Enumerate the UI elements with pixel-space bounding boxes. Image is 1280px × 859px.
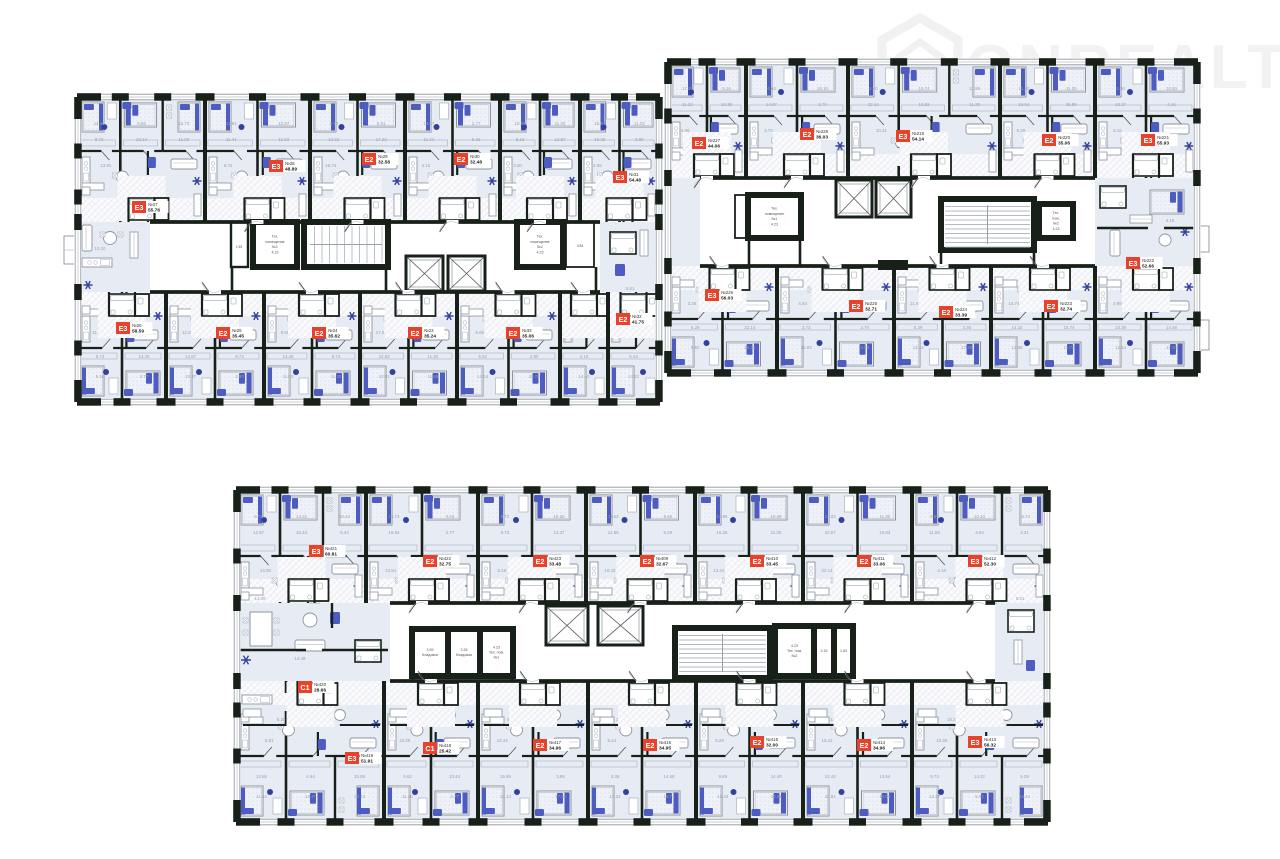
svg-text:4.16: 4.16 <box>937 568 946 573</box>
svg-text:13.44: 13.44 <box>713 568 725 573</box>
svg-text:9.73: 9.73 <box>930 774 939 779</box>
svg-text:2.77: 2.77 <box>140 374 149 379</box>
svg-text:56.32: 56.32 <box>984 743 996 749</box>
svg-text:22.14: 22.14 <box>822 568 834 573</box>
svg-text:Тех.: Тех. <box>272 235 279 239</box>
svg-text:5.51: 5.51 <box>377 121 386 126</box>
svg-text:14.09: 14.09 <box>255 596 267 601</box>
svg-text:13.44: 13.44 <box>497 738 509 743</box>
svg-text:33.39: 33.39 <box>955 313 967 319</box>
svg-text:5.52: 5.52 <box>479 354 488 359</box>
svg-text:№414: №414 <box>873 740 886 745</box>
svg-text:№26: №26 <box>132 323 142 328</box>
svg-text:4.23: 4.23 <box>493 645 500 649</box>
svg-text:35.24: 35.24 <box>424 334 436 340</box>
svg-text:E3: E3 <box>312 547 321 556</box>
svg-text:9.69: 9.69 <box>664 514 673 519</box>
svg-text:E3: E3 <box>971 738 980 747</box>
svg-text:№32: №32 <box>632 314 642 319</box>
svg-text:9.69: 9.69 <box>475 330 484 335</box>
svg-text:11.63: 11.63 <box>283 374 294 379</box>
svg-text:№419: №419 <box>361 753 374 758</box>
svg-text:№225: №225 <box>865 301 878 306</box>
svg-text:E2: E2 <box>803 130 812 139</box>
svg-text:13.91: 13.91 <box>379 374 391 379</box>
svg-text:Тех.: Тех. <box>537 235 544 239</box>
svg-text:E2: E2 <box>1045 136 1054 145</box>
svg-text:12.87: 12.87 <box>253 530 265 535</box>
svg-text:15.74: 15.74 <box>1019 514 1031 519</box>
svg-text:5.29: 5.29 <box>277 717 286 722</box>
svg-text:2.77: 2.77 <box>450 794 459 799</box>
svg-text:E3: E3 <box>272 162 281 171</box>
svg-text:17.20: 17.20 <box>961 345 973 350</box>
svg-text:№23: №23 <box>424 328 434 333</box>
svg-text:10.83: 10.83 <box>594 121 606 126</box>
svg-text:№31: №31 <box>629 172 639 177</box>
svg-text:4.64: 4.64 <box>767 86 776 91</box>
svg-text:22.14: 22.14 <box>500 794 512 799</box>
svg-text:10.41: 10.41 <box>876 128 888 133</box>
svg-text:14.22: 14.22 <box>328 137 340 142</box>
svg-text:9.69: 9.69 <box>930 514 939 519</box>
svg-text:32.48: 32.48 <box>470 160 482 166</box>
svg-text:E2: E2 <box>536 557 545 566</box>
svg-text:E2: E2 <box>753 738 762 747</box>
svg-text:E3: E3 <box>971 557 980 566</box>
svg-text:Тех.: Тех. <box>1053 211 1060 215</box>
svg-text:3.40: 3.40 <box>513 163 522 168</box>
svg-text:12.86: 12.86 <box>717 514 729 519</box>
svg-text:22.14: 22.14 <box>136 137 148 142</box>
svg-text:11.20: 11.20 <box>427 354 438 359</box>
svg-text:5.16: 5.16 <box>722 86 731 91</box>
svg-text:11.20: 11.20 <box>969 102 980 107</box>
svg-text:11.59: 11.59 <box>929 530 940 535</box>
svg-text:14.40: 14.40 <box>94 121 106 126</box>
svg-text:5.52: 5.52 <box>975 794 984 799</box>
svg-text:E3: E3 <box>1144 136 1153 145</box>
svg-text:14.40: 14.40 <box>771 774 783 779</box>
svg-text:35.45: 35.45 <box>232 334 244 340</box>
svg-text:4.23: 4.23 <box>791 644 798 648</box>
svg-text:E2: E2 <box>695 139 704 148</box>
svg-text:E2: E2 <box>753 557 762 566</box>
svg-text:32.74: 32.74 <box>1060 307 1072 313</box>
svg-text:10.39: 10.39 <box>721 102 733 107</box>
svg-text:3.70: 3.70 <box>818 102 827 107</box>
svg-text:13.37: 13.37 <box>554 530 566 535</box>
svg-text:3.70: 3.70 <box>861 325 870 330</box>
svg-text:3.98: 3.98 <box>861 345 870 350</box>
svg-text:2.77: 2.77 <box>446 530 455 535</box>
svg-text:17.20: 17.20 <box>682 86 694 91</box>
svg-text:11.44: 11.44 <box>226 137 237 142</box>
svg-text:15.74: 15.74 <box>389 514 401 519</box>
svg-text:C1: C1 <box>300 683 309 692</box>
svg-text:17.20: 17.20 <box>1166 345 1178 350</box>
svg-text:14.48: 14.48 <box>1166 325 1178 330</box>
svg-text:10.43: 10.43 <box>296 530 308 535</box>
svg-text:13.44: 13.44 <box>1019 794 1031 799</box>
svg-text:10.39: 10.39 <box>399 738 411 743</box>
svg-text:41.75: 41.75 <box>632 320 644 326</box>
svg-text:№412: №412 <box>984 556 997 561</box>
svg-text:12.83: 12.83 <box>801 345 813 350</box>
svg-text:35.62: 35.62 <box>328 334 340 340</box>
svg-text:помещение: помещение <box>530 240 549 244</box>
svg-text:36.03: 36.03 <box>816 135 828 141</box>
svg-text:№226: №226 <box>721 290 734 295</box>
svg-text:№30: №30 <box>470 154 480 159</box>
svg-text:52.30: 52.30 <box>984 562 996 568</box>
svg-text:10.10: 10.10 <box>817 86 829 91</box>
svg-text:№25: №25 <box>232 328 242 333</box>
svg-text:5.16: 5.16 <box>498 568 507 573</box>
svg-text:5.51: 5.51 <box>265 738 274 743</box>
svg-text:15.70: 15.70 <box>529 374 541 379</box>
svg-text:3.15: 3.15 <box>821 649 828 653</box>
svg-text:Тех. пом.: Тех. пом. <box>489 651 504 655</box>
svg-text:10.83: 10.83 <box>879 530 891 535</box>
svg-text:12.44: 12.44 <box>913 345 925 350</box>
svg-text:3.73: 3.73 <box>802 325 811 330</box>
svg-text:E2: E2 <box>365 155 374 164</box>
svg-text:51.91: 51.91 <box>361 759 373 765</box>
svg-text:9.73: 9.73 <box>235 354 244 359</box>
svg-text:3.90: 3.90 <box>635 137 644 142</box>
svg-text:55.76: 55.76 <box>148 208 160 214</box>
svg-text:5.44: 5.44 <box>340 530 349 535</box>
svg-text:5.16: 5.16 <box>516 137 525 142</box>
svg-text:15.74: 15.74 <box>325 163 337 168</box>
svg-text:13.37: 13.37 <box>1115 102 1127 107</box>
svg-text:14.67: 14.67 <box>766 102 778 107</box>
svg-text:10.39: 10.39 <box>1115 325 1127 330</box>
svg-text:11.63: 11.63 <box>278 137 289 142</box>
svg-text:9.69: 9.69 <box>719 774 728 779</box>
svg-text:№221: №221 <box>1157 135 1170 140</box>
svg-text:№223: №223 <box>1060 301 1073 306</box>
svg-text:15.74: 15.74 <box>919 86 931 91</box>
svg-text:32.75: 32.75 <box>439 562 451 568</box>
svg-text:35.06: 35.06 <box>522 334 534 340</box>
svg-text:E3: E3 <box>899 132 908 141</box>
svg-text:E3: E3 <box>119 324 128 333</box>
svg-text:9.73: 9.73 <box>501 530 510 535</box>
svg-text:E2: E2 <box>643 557 652 566</box>
svg-text:помещение: помещение <box>265 240 284 244</box>
svg-text:E2: E2 <box>619 315 628 324</box>
svg-text:11.20: 11.20 <box>1018 86 1029 91</box>
svg-text:8.72: 8.72 <box>95 137 104 142</box>
svg-text:12.44: 12.44 <box>717 794 729 799</box>
svg-text:1.83: 1.83 <box>840 649 847 653</box>
svg-text:4.23: 4.23 <box>537 250 544 254</box>
svg-text:4.23: 4.23 <box>272 250 279 254</box>
svg-text:52.66: 52.66 <box>1142 264 1154 270</box>
svg-text:4.64: 4.64 <box>306 774 315 779</box>
svg-text:12.86: 12.86 <box>256 774 268 779</box>
svg-text:13.44: 13.44 <box>449 774 461 779</box>
svg-text:8.72: 8.72 <box>224 163 233 168</box>
svg-text:8.72: 8.72 <box>501 514 510 519</box>
svg-text:12.86: 12.86 <box>1012 345 1024 350</box>
svg-text:4.64: 4.64 <box>446 514 455 519</box>
svg-text:5.29: 5.29 <box>914 325 923 330</box>
svg-text:15.89: 15.89 <box>1066 102 1078 107</box>
svg-text:17.50: 17.50 <box>555 794 567 799</box>
svg-text:5.16: 5.16 <box>96 374 105 379</box>
svg-text:5.29: 5.29 <box>664 530 673 535</box>
svg-text:11.63: 11.63 <box>608 514 619 519</box>
svg-text:3.26: 3.26 <box>461 648 468 652</box>
svg-text:12.14: 12.14 <box>477 374 489 379</box>
svg-text:14.22: 14.22 <box>1012 325 1024 330</box>
svg-text:12.87: 12.87 <box>555 137 567 142</box>
svg-text:№409: №409 <box>656 556 669 561</box>
svg-text:11.03: 11.03 <box>178 137 189 142</box>
svg-text:55.93: 55.93 <box>1157 141 1169 147</box>
svg-text:11.59: 11.59 <box>427 374 438 379</box>
svg-text:E2: E2 <box>536 741 545 750</box>
svg-text:1.55: 1.55 <box>236 245 242 249</box>
svg-text:12.87: 12.87 <box>278 121 290 126</box>
svg-text:Тех.: Тех. <box>771 207 778 211</box>
svg-text:E2: E2 <box>852 302 861 311</box>
svg-text:10.41: 10.41 <box>771 794 783 799</box>
svg-text:№222: №222 <box>1142 258 1155 263</box>
svg-text:3.90: 3.90 <box>235 374 244 379</box>
svg-text:№27: №27 <box>148 202 158 207</box>
svg-text:22.14: 22.14 <box>868 102 880 107</box>
svg-text:32.67: 32.67 <box>656 562 668 568</box>
svg-text:35.06: 35.06 <box>1058 141 1070 147</box>
svg-text:13.91: 13.91 <box>100 163 112 168</box>
svg-text:№28: №28 <box>285 161 295 166</box>
svg-text:4.23: 4.23 <box>1053 227 1060 231</box>
svg-text:5.29: 5.29 <box>691 325 700 330</box>
svg-text:15.74: 15.74 <box>1064 325 1076 330</box>
svg-text:E2: E2 <box>411 329 420 338</box>
svg-text:10.43: 10.43 <box>354 794 366 799</box>
svg-text:E2: E2 <box>457 155 466 164</box>
svg-text:4.31: 4.31 <box>1020 530 1029 535</box>
svg-text:12.86: 12.86 <box>608 530 620 535</box>
svg-text:13.37: 13.37 <box>305 794 317 799</box>
svg-text:10.39: 10.39 <box>515 121 527 126</box>
svg-text:3.36: 3.36 <box>963 325 972 330</box>
svg-text:5.81: 5.81 <box>1016 596 1025 601</box>
svg-text:16.94: 16.94 <box>389 530 401 535</box>
svg-text:11.30: 11.30 <box>879 514 890 519</box>
svg-text:14.40: 14.40 <box>139 354 151 359</box>
svg-text:16.94: 16.94 <box>1018 102 1030 107</box>
svg-text:15.70: 15.70 <box>1064 345 1076 350</box>
svg-text:8.72: 8.72 <box>96 354 105 359</box>
svg-text:34.95: 34.95 <box>659 746 671 752</box>
svg-text:14.22: 14.22 <box>296 514 308 519</box>
svg-text:4.16: 4.16 <box>580 354 589 359</box>
svg-text:54.48: 54.48 <box>629 178 641 184</box>
svg-text:4.64: 4.64 <box>975 530 984 535</box>
svg-text:3.40: 3.40 <box>869 86 878 91</box>
svg-text:8.72: 8.72 <box>254 514 263 519</box>
svg-text:№1: №1 <box>272 245 278 249</box>
svg-text:№220: №220 <box>1058 135 1071 140</box>
svg-text:№228: №228 <box>816 129 829 134</box>
svg-text:14.48: 14.48 <box>664 774 676 779</box>
svg-text:13.37: 13.37 <box>185 374 197 379</box>
svg-text:32.58: 32.58 <box>378 160 390 166</box>
svg-text:56.03: 56.03 <box>721 296 733 302</box>
svg-text:№413: №413 <box>984 737 997 742</box>
svg-text:14.09: 14.09 <box>260 568 272 573</box>
svg-text:11.30: 11.30 <box>1066 86 1077 91</box>
svg-text:16.26: 16.26 <box>744 345 756 350</box>
svg-text:№415: №415 <box>766 737 779 742</box>
svg-text:10.10: 10.10 <box>974 514 986 519</box>
svg-text:3.90: 3.90 <box>530 354 539 359</box>
svg-text:25.42: 25.42 <box>439 749 451 755</box>
svg-text:54.14: 54.14 <box>912 137 924 143</box>
svg-text:№224: №224 <box>955 307 968 312</box>
svg-text:11.30: 11.30 <box>331 374 342 379</box>
svg-text:Тех. пом.: Тех. пом. <box>787 649 802 653</box>
svg-text:№219: №219 <box>912 131 925 136</box>
svg-text:4.16: 4.16 <box>1167 102 1176 107</box>
svg-text:5.44: 5.44 <box>608 738 617 743</box>
svg-text:14.67: 14.67 <box>423 121 435 126</box>
svg-text:№411: №411 <box>873 556 885 561</box>
svg-text:№24: №24 <box>328 328 338 333</box>
svg-text:3.59: 3.59 <box>427 648 434 652</box>
svg-text:14.09: 14.09 <box>879 794 891 799</box>
svg-text:14.22: 14.22 <box>610 794 622 799</box>
svg-text:5.44: 5.44 <box>629 354 638 359</box>
svg-text:E2: E2 <box>315 329 324 338</box>
svg-text:9.73: 9.73 <box>332 354 341 359</box>
svg-text:10.83: 10.83 <box>919 102 931 107</box>
svg-text:15.70: 15.70 <box>178 121 190 126</box>
svg-text:E2: E2 <box>860 557 869 566</box>
svg-text:E3: E3 <box>135 203 144 212</box>
svg-text:10.43: 10.43 <box>339 514 351 519</box>
svg-text:10.10: 10.10 <box>95 246 107 251</box>
svg-text:E2: E2 <box>509 329 518 338</box>
svg-text:5.16: 5.16 <box>472 137 481 142</box>
svg-text:16.26: 16.26 <box>554 514 566 519</box>
svg-text:№417: №417 <box>549 740 562 745</box>
svg-text:32.00: 32.00 <box>766 743 778 749</box>
svg-text:E3: E3 <box>616 173 625 182</box>
svg-text:9.62: 9.62 <box>403 774 412 779</box>
svg-text:28.66: 28.66 <box>314 688 326 694</box>
svg-text:Кладовая: Кладовая <box>456 653 472 657</box>
svg-text:11.30: 11.30 <box>555 121 566 126</box>
svg-text:пом.: пом. <box>1052 216 1059 220</box>
svg-text:E2: E2 <box>860 741 869 750</box>
svg-text:5.52: 5.52 <box>691 345 700 350</box>
svg-text:13.37: 13.37 <box>929 794 941 799</box>
svg-text:14.40: 14.40 <box>579 374 591 379</box>
svg-text:14.22: 14.22 <box>628 374 640 379</box>
svg-text:3.98: 3.98 <box>556 774 565 779</box>
svg-text:Кладовки: Кладовки <box>422 653 438 657</box>
svg-text:3.36: 3.36 <box>1116 86 1125 91</box>
svg-text:4.64: 4.64 <box>798 301 807 306</box>
svg-text:E3: E3 <box>348 754 357 763</box>
svg-text:№33: №33 <box>522 328 532 333</box>
svg-text:11.30: 11.30 <box>771 530 782 535</box>
svg-text:15.74: 15.74 <box>664 794 676 799</box>
svg-text:34.96: 34.96 <box>549 746 561 752</box>
svg-text:2.77: 2.77 <box>472 121 481 126</box>
svg-text:10.39: 10.39 <box>771 514 783 519</box>
svg-text:4.06: 4.06 <box>593 163 602 168</box>
svg-text:№29: №29 <box>378 154 388 159</box>
svg-text:11.03: 11.03 <box>634 121 645 126</box>
svg-text:34.96: 34.96 <box>873 746 885 752</box>
svg-text:33.06: 33.06 <box>873 562 885 568</box>
svg-text:48.89: 48.89 <box>285 167 297 173</box>
svg-text:9.69: 9.69 <box>137 121 146 126</box>
svg-text:11.44: 11.44 <box>423 137 434 142</box>
svg-text:14.48: 14.48 <box>295 656 307 661</box>
svg-text:№227: №227 <box>708 138 721 143</box>
svg-text:3.84: 3.84 <box>577 244 584 248</box>
svg-text:№2: №2 <box>792 654 798 658</box>
svg-text:E2: E2 <box>942 308 951 317</box>
svg-text:12.83: 12.83 <box>379 354 391 359</box>
svg-text:12.44: 12.44 <box>825 774 837 779</box>
svg-text:3.98: 3.98 <box>1113 301 1122 306</box>
svg-text:14.22: 14.22 <box>825 514 837 519</box>
svg-text:№1: №1 <box>772 217 778 221</box>
svg-text:3.36: 3.36 <box>611 774 620 779</box>
svg-text:16.26: 16.26 <box>594 137 606 142</box>
svg-text:4.23: 4.23 <box>771 222 778 226</box>
svg-text:13.91: 13.91 <box>825 794 837 799</box>
svg-text:№420: №420 <box>314 682 327 687</box>
svg-text:11.20: 11.20 <box>682 102 693 107</box>
svg-text:15.74: 15.74 <box>1008 301 1020 306</box>
svg-text:11.20: 11.20 <box>402 794 413 799</box>
svg-text:3.70: 3.70 <box>330 121 339 126</box>
svg-text:№418: №418 <box>439 743 452 748</box>
svg-text:11.44: 11.44 <box>256 794 267 799</box>
svg-text:14.67: 14.67 <box>185 354 197 359</box>
svg-text:5.29: 5.29 <box>1020 774 1029 779</box>
svg-text:14.22: 14.22 <box>376 137 388 142</box>
svg-text:10.41: 10.41 <box>822 738 834 743</box>
svg-text:22.14: 22.14 <box>744 325 756 330</box>
svg-text:15.89: 15.89 <box>354 774 366 779</box>
svg-text:C1: C1 <box>425 744 434 753</box>
svg-text:3.36: 3.36 <box>688 301 697 306</box>
svg-text:5.29: 5.29 <box>715 738 724 743</box>
svg-text:4.16: 4.16 <box>1166 218 1175 223</box>
svg-text:15.89: 15.89 <box>500 774 512 779</box>
svg-text:12.14: 12.14 <box>1115 345 1127 350</box>
svg-text:E2: E2 <box>1047 302 1056 311</box>
svg-text:3.70: 3.70 <box>764 128 773 133</box>
svg-text:№2: №2 <box>1053 222 1059 226</box>
svg-text:33.48: 33.48 <box>549 562 561 568</box>
svg-text:10.43: 10.43 <box>605 568 617 573</box>
svg-text:14.48: 14.48 <box>283 354 295 359</box>
svg-text:44.06: 44.06 <box>708 144 720 150</box>
